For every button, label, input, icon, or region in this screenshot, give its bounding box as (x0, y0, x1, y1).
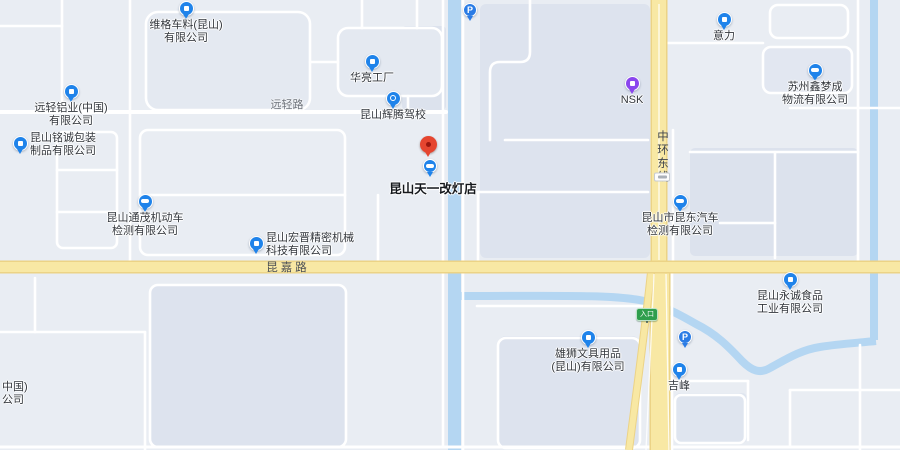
poi-label-mingcheng: 昆山铭诚包装 制品有限公司 (30, 132, 96, 157)
poi-yili[interactable] (717, 12, 732, 27)
poi-tongmao[interactable] (138, 194, 153, 209)
car-icon (676, 199, 684, 204)
company-icon (722, 17, 727, 22)
pin-inner-dot (426, 142, 431, 147)
poi-yongcheng[interactable] (783, 272, 798, 287)
poi-label-yongcheng: 昆山永诚食品 工业有限公司 (757, 290, 823, 315)
poi-hualiang[interactable] (365, 54, 380, 69)
poi-huiteng[interactable] (386, 91, 401, 106)
poi-label-xiongshi: 雄狮文具用品 (昆山)有限公司 (551, 348, 624, 373)
map-canvas[interactable]: 维格车料(昆山) 有限公司远轻铝业(中国) 有限公司昆山铭诚包装 制品有限公司华… (0, 0, 900, 450)
road-label-kunjia-road: 昆嘉路 (266, 259, 310, 275)
marker-tail (682, 343, 688, 348)
poi-nsk[interactable] (625, 76, 640, 91)
truck-icon (811, 68, 819, 73)
road-label-yuanqing-road: 远轻路 (271, 96, 304, 112)
poi-jifeng[interactable] (672, 362, 687, 377)
poi-yuanqing-lvye[interactable] (64, 84, 79, 99)
company-icon (18, 141, 23, 146)
entrance-badge: 入口 (636, 308, 658, 321)
company-icon (586, 335, 591, 340)
poi-hongjin[interactable] (249, 236, 264, 251)
marker-tail (467, 16, 473, 21)
parking-icon: P (467, 6, 473, 15)
poi-xinmengcheng[interactable] (808, 63, 823, 78)
poi-weige[interactable] (179, 1, 194, 16)
pin-tail (424, 150, 432, 157)
parking-south[interactable]: P (678, 330, 692, 344)
poi-mingcheng[interactable] (13, 136, 28, 151)
company-icon (788, 277, 793, 282)
company-icon (677, 367, 682, 372)
poi-label-yili: 意力 (713, 30, 735, 43)
nsk-icon (630, 81, 635, 86)
poi-label-yuanqing-lvye: 远轻铝业(中国) 有限公司 (34, 102, 107, 127)
destination-label: 昆山天一改灯店 (389, 178, 477, 197)
poi-label-tongmao: 昆山通茂机动车 检测有限公司 (107, 212, 184, 237)
poi-layer: 维格车料(昆山) 有限公司远轻铝业(中国) 有限公司昆山铭诚包装 制品有限公司华… (0, 0, 900, 450)
poi-label-kundong: 昆山市昆东汽车 检测有限公司 (642, 212, 719, 237)
road-shield (654, 173, 670, 182)
poi-label-nsk: NSK (621, 94, 644, 107)
company-icon (254, 241, 259, 246)
factory-icon (370, 59, 375, 64)
poi-label-jifeng: 吉峰 (668, 380, 690, 393)
poi-kundong[interactable] (673, 194, 688, 209)
poi-label-huiteng: 昆山辉腾驾校 (360, 109, 426, 122)
driving-school-icon (390, 95, 396, 101)
poi-label-hongjin: 昆山宏晋精密机械 科技有限公司 (266, 232, 354, 257)
poi-label-xinmengcheng: 苏州鑫梦成 物流有限公司 (782, 81, 848, 106)
company-icon (184, 6, 189, 11)
destination-shop-marker[interactable] (423, 159, 437, 173)
road-shield-glyph (658, 176, 667, 179)
destination-pin[interactable] (420, 136, 437, 153)
parking-north[interactable]: P (463, 3, 477, 17)
parking-icon: P (682, 333, 688, 342)
clipped-poi-label: 中国) 公司 (2, 381, 28, 406)
poi-label-hualiang: 华亮工厂 (350, 72, 394, 85)
company-icon (69, 89, 74, 94)
car-icon (141, 199, 149, 204)
car-icon (426, 164, 434, 169)
marker-tail (253, 249, 259, 254)
marker-tail (17, 149, 23, 154)
poi-xiongshi[interactable] (581, 330, 596, 345)
poi-label-weige: 维格车料(昆山) 有限公司 (149, 19, 222, 44)
marker-tail (427, 172, 433, 177)
